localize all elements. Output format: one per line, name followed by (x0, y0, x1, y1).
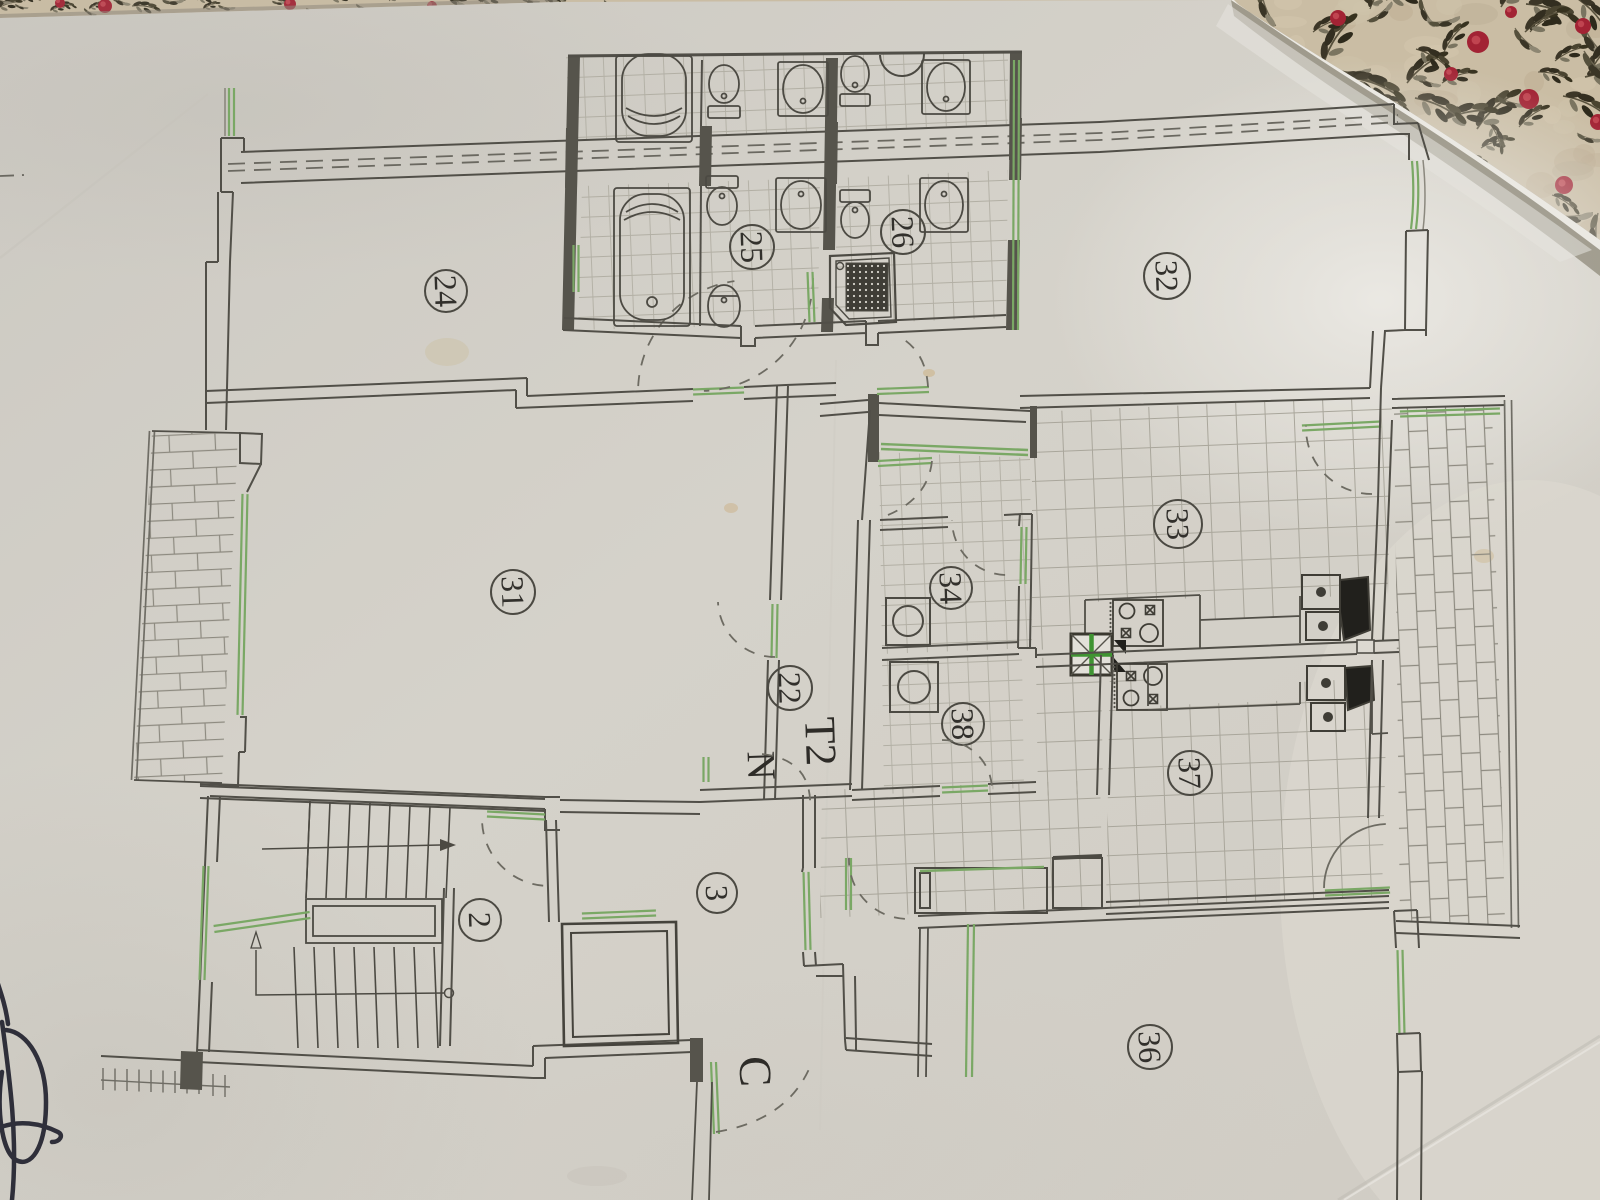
svg-text:N: N (739, 750, 785, 780)
svg-text:32: 32 (1148, 259, 1185, 292)
svg-text:36: 36 (1131, 1030, 1168, 1063)
svg-text:34: 34 (932, 571, 969, 604)
svg-text:25: 25 (733, 230, 770, 263)
svg-text:37: 37 (1171, 756, 1208, 789)
svg-text:33: 33 (1159, 507, 1196, 540)
svg-text:24: 24 (427, 274, 464, 307)
svg-text:2: 2 (462, 911, 499, 928)
svg-text:C: C (729, 1055, 781, 1087)
svg-text:T2: T2 (795, 716, 846, 767)
svg-text:31: 31 (494, 575, 531, 608)
svg-text:26: 26 (884, 215, 921, 248)
svg-text:22: 22 (771, 671, 808, 704)
svg-text:38: 38 (944, 707, 981, 740)
svg-text:3: 3 (699, 884, 736, 901)
